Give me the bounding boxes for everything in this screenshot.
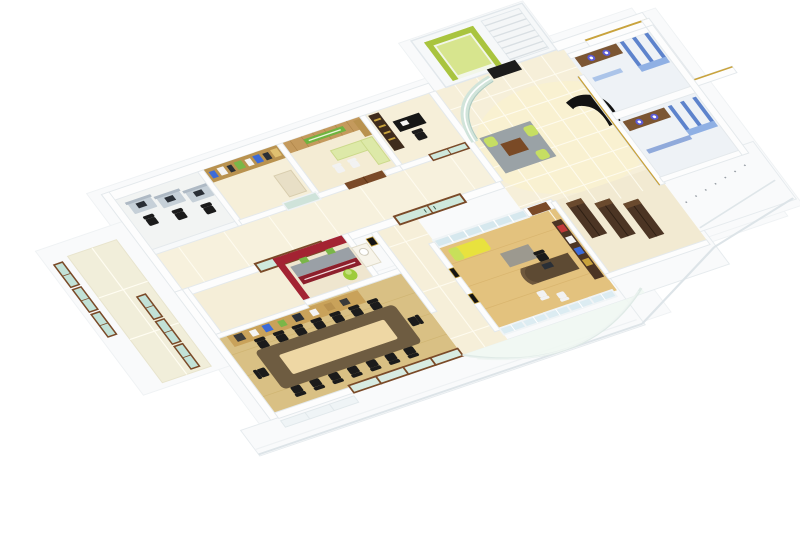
floorplan-render xyxy=(0,0,800,550)
floorplan-svg xyxy=(0,0,800,550)
iso-world xyxy=(0,0,800,475)
